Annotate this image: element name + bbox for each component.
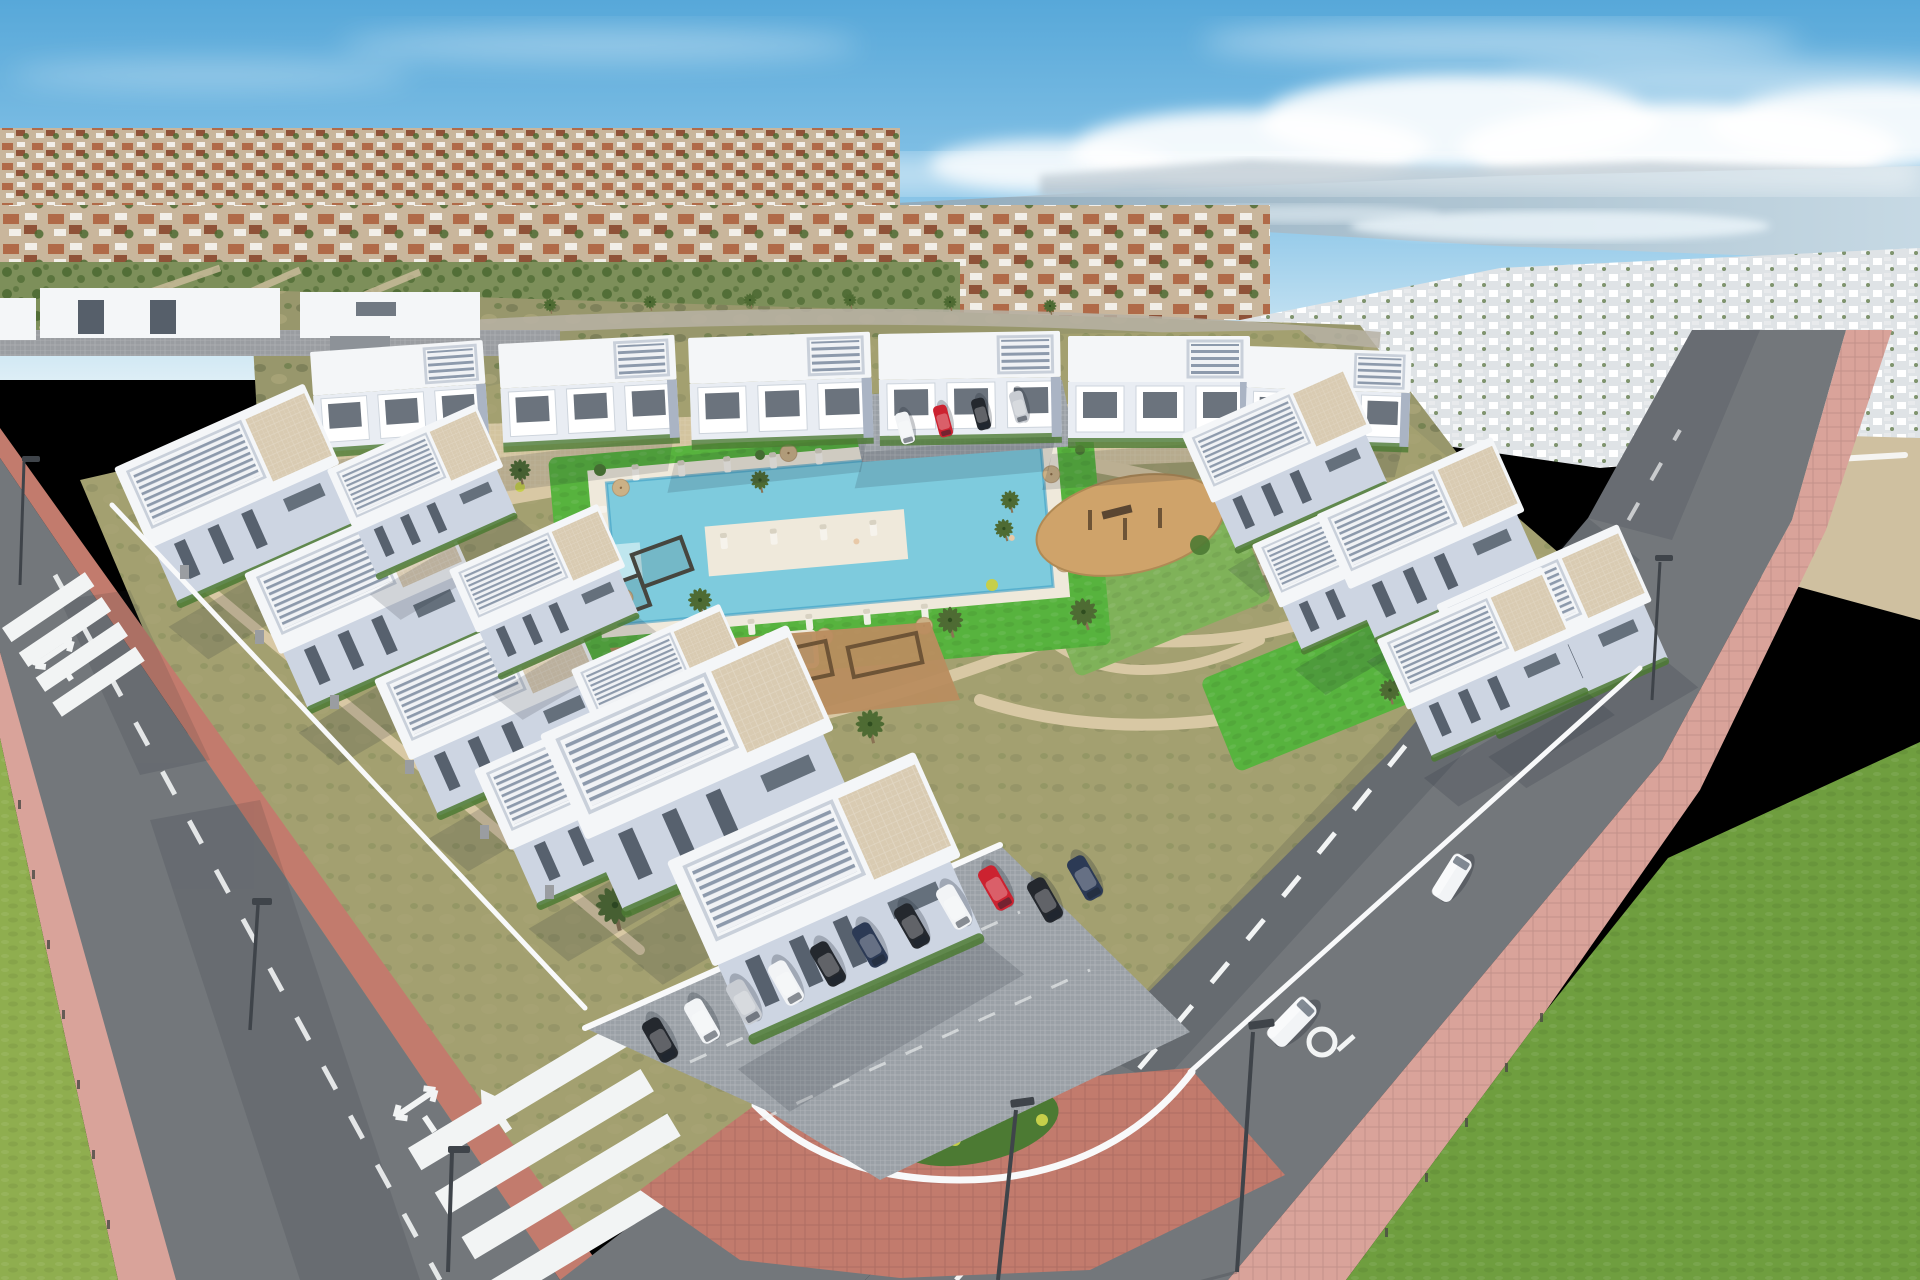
sun-lounger <box>770 528 778 545</box>
gabion-pillar <box>405 760 414 774</box>
fence-post <box>1465 1118 1468 1127</box>
gabion-pillar <box>180 565 189 579</box>
gabion-pillar <box>330 695 339 709</box>
aerial-photo: Aerial drone view of a modern white apar… <box>0 0 1920 1280</box>
cloud-wisp <box>1200 24 1800 60</box>
gabion-pillar <box>545 885 554 899</box>
gabion-pillar <box>480 825 489 839</box>
yellow-bush <box>1036 1114 1048 1126</box>
fence-post <box>62 1010 65 1019</box>
fence-post <box>1540 1013 1543 1022</box>
apartment-block <box>662 332 875 493</box>
sun-lounger <box>805 614 813 631</box>
fence-post <box>1425 1173 1428 1182</box>
fence-post <box>18 800 21 809</box>
villa-door <box>78 300 104 334</box>
villa-window <box>356 302 396 316</box>
aerial-photo-stage: Aerial drone view of a modern white apar… <box>0 0 1920 1280</box>
sun-lounger <box>819 524 827 541</box>
bush <box>986 579 998 591</box>
bush <box>1190 535 1210 555</box>
fence-post <box>92 1150 95 1159</box>
cloud-wisp <box>10 61 410 89</box>
sun-lounger <box>747 619 755 636</box>
fence-post <box>77 1080 80 1089</box>
fence-post <box>32 870 35 879</box>
fence-post <box>47 940 50 949</box>
horizon-haze <box>830 155 1920 193</box>
fence-post <box>1385 1228 1388 1237</box>
sun-lounger <box>720 533 728 550</box>
sun-lounger <box>869 520 877 537</box>
apartment-block <box>852 331 1063 489</box>
gabion-pillar <box>255 630 264 644</box>
cloud-wisp <box>340 29 860 61</box>
fence-post <box>107 1220 110 1229</box>
sun-lounger <box>863 609 871 626</box>
apartment-block <box>473 335 682 495</box>
villa-door <box>150 300 176 334</box>
fence-post <box>1505 1063 1508 1072</box>
villa <box>0 298 36 340</box>
